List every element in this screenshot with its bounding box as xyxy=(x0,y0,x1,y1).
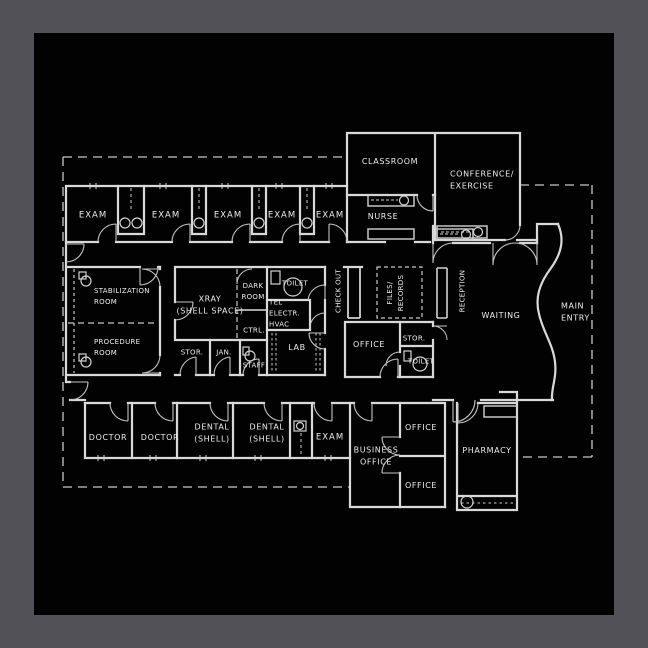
room-label-exam-4: EXAM xyxy=(268,209,296,222)
room-label-exam-1: EXAM xyxy=(79,209,107,222)
room-label-nurse: NURSE xyxy=(368,211,399,223)
room-label-lab: LAB xyxy=(288,342,305,354)
room-label-classroom: CLASSROOM xyxy=(362,156,418,168)
room-label-doctor-1: DOCTOR xyxy=(89,432,127,444)
room-label-conference-exercise: CONFERENCE/ EXERCISE xyxy=(450,169,514,194)
floor-plan-sheet: EXAM EXAM EXAM EXAM EXAM CLASSROOM NURSE… xyxy=(0,0,648,648)
room-label-exam-3: EXAM xyxy=(214,209,242,222)
room-label-jan: JAN. xyxy=(216,348,231,359)
room-label-toilet-1: TOILET xyxy=(282,279,308,290)
room-label-dental-2: DENTAL (SHELL) xyxy=(249,422,285,447)
room-label-waiting: WAITING xyxy=(482,310,521,322)
room-label-staff: STAFF xyxy=(243,361,266,372)
floor-plan-svg xyxy=(0,0,648,648)
room-label-darkroom: DARK ROOM xyxy=(241,281,264,303)
room-label-business-office: BUSINESS OFFICE xyxy=(354,445,399,470)
room-label-stabilization: STABILIZATION ROOM xyxy=(94,286,150,308)
room-label-ctrl: CTRL. xyxy=(243,326,265,337)
room-label-pharmacy: PHARMACY xyxy=(462,445,511,457)
room-label-files-records: FILES/ RECORDS xyxy=(385,275,407,311)
room-label-toilet-2: TOILET xyxy=(408,357,434,368)
label-main-entry: MAIN ENTRY xyxy=(561,301,590,326)
room-label-office-1: OFFICE xyxy=(353,339,385,351)
room-label-xray: XRAY (SHELL SPACE) xyxy=(176,294,243,319)
room-label-exam-2: EXAM xyxy=(152,209,180,222)
room-label-procedure: PROCEDURE ROOM xyxy=(94,337,140,359)
room-label-exam-6: EXAM xyxy=(316,431,344,444)
room-label-stor-1: STOR. xyxy=(181,348,204,359)
room-label-tel-electr-hvac: TEL ELECTR. HVAC xyxy=(269,298,300,331)
room-label-stor-2: STOR. xyxy=(403,334,426,345)
room-label-office-2: OFFICE xyxy=(405,422,437,434)
room-label-reception: RECEPTION xyxy=(458,270,469,313)
room-label-check-out: CHECK OUT xyxy=(334,269,345,313)
room-label-doctor-2: DOCTOR xyxy=(141,432,179,444)
room-label-office-3: OFFICE xyxy=(405,480,437,492)
room-label-dental-1: DENTAL (SHELL) xyxy=(194,422,230,447)
room-label-exam-5: EXAM xyxy=(316,209,344,222)
